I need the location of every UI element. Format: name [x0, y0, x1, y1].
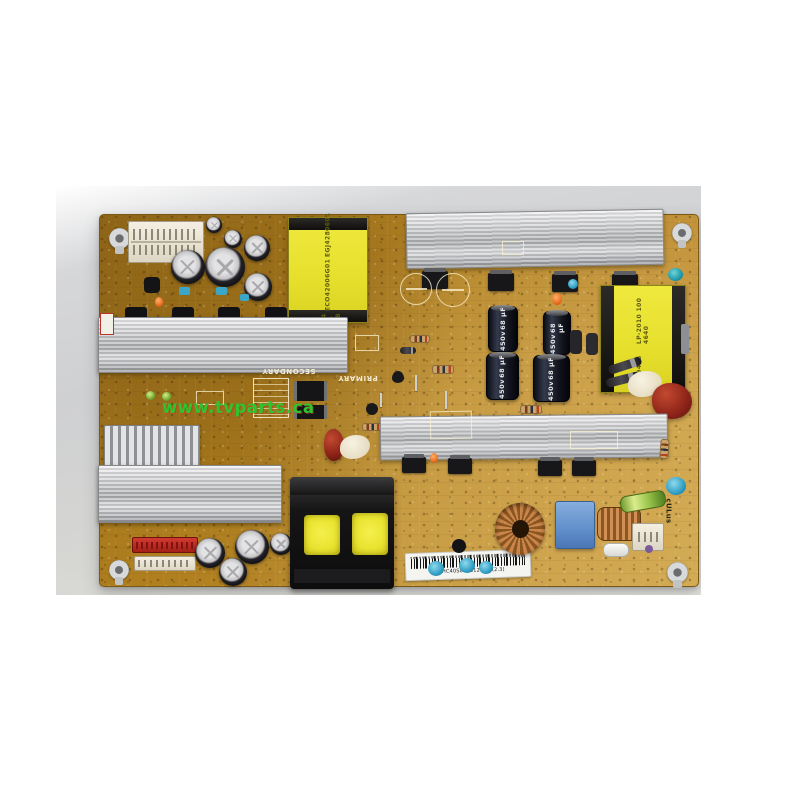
bulk-capacitor-450v: 450v68 µF: [486, 353, 519, 400]
electrolytic-capacitor: [205, 247, 245, 287]
mounting-eyelet: [109, 560, 129, 580]
disc-capacitor-blue: [568, 279, 578, 289]
silkscreen-primary-label: PRIMARY: [338, 374, 378, 382]
core-top-bar: [290, 477, 394, 495]
disc-capacitor-orange: [155, 297, 163, 307]
mounting-eyelet: [667, 562, 688, 583]
resistor-vertical: [586, 333, 598, 355]
fuse-cylinder: [603, 543, 629, 557]
core-bottom-bar: [294, 569, 390, 583]
electrolytic-capacitor: [244, 235, 270, 261]
resistor: [659, 439, 669, 460]
silkscreen-box: [430, 411, 472, 440]
power-transistor: [488, 273, 514, 291]
electrolytic-capacitor: [219, 558, 247, 586]
capacitor-label: 450v68 µF: [499, 307, 507, 351]
connector-pin-slots: [138, 560, 192, 567]
output-connector-red: [132, 537, 198, 553]
film-capacitor-blue: [179, 287, 190, 295]
disc-capacitor-orange: [552, 293, 562, 305]
power-transistor: [402, 457, 426, 473]
resistor-vertical: [570, 330, 582, 354]
to92-transistor: [452, 539, 466, 553]
film-capacitor-blue: [216, 287, 227, 295]
bulk-capacitor-450v: 450v68 µF: [533, 355, 570, 402]
connector-divider: [131, 241, 201, 243]
glass-diode-green: [619, 489, 667, 514]
bulk-capacitor-450v: 450v68 µF: [543, 311, 571, 355]
winding-window: [304, 515, 340, 555]
mounting-eyelet: [109, 228, 130, 249]
filter-capacitor-box: [555, 501, 595, 549]
resistor: [432, 365, 454, 374]
electrolytic-capacitor: [235, 530, 269, 564]
jumper-wire: [445, 391, 447, 409]
ul-safety-mark: cULus: [664, 499, 672, 524]
electrolytic-capacitor: [224, 230, 242, 248]
silkscreen-cap-footprint: [436, 273, 470, 307]
electrolytic-capacitor: [171, 250, 205, 284]
power-transistor: [572, 460, 596, 476]
to92-transistor: [392, 371, 404, 383]
axial-diode: [400, 347, 416, 354]
silkscreen-secondary-label: SECONDARY: [262, 367, 315, 375]
disc-capacitor-teal: [668, 268, 683, 281]
jumper-wire: [380, 393, 382, 407]
to92-transistor: [366, 403, 378, 415]
connector-pin-slots: [638, 532, 659, 542]
output-connector-white: [134, 556, 196, 571]
power-transistor: [448, 458, 472, 474]
jumper-wire: [415, 375, 417, 391]
capacitor-label: 450v68 µF: [547, 357, 555, 401]
electrolytic-capacitor: [270, 533, 292, 555]
mounting-eyelet: [672, 223, 692, 243]
product-photo: www.tvparts.ca LS-D04: [56, 186, 701, 595]
transformer-bottom: [290, 477, 394, 589]
disc-capacitor-blue: [459, 558, 475, 573]
disc-capacitor-orange: [430, 453, 438, 463]
film-capacitor-blue: [240, 294, 249, 301]
heatsink-top-right: [406, 209, 665, 269]
edge-label: [100, 313, 114, 335]
capacitor-label: 450v68 µF: [549, 312, 565, 354]
bead-purple: [645, 545, 653, 553]
electrolytic-capacitor: [206, 217, 222, 233]
inductor-small: [144, 277, 160, 293]
resistor: [520, 405, 542, 414]
resistor: [410, 335, 430, 343]
disc-capacitor-blue: [666, 477, 686, 495]
winding-window: [352, 513, 388, 555]
green-diode: [146, 391, 155, 400]
transformer-top: LS-D04 SC-D3B ECO42006G01 EGJ4280601: [288, 217, 368, 323]
watermark: www.tvparts.ca: [162, 398, 315, 417]
silkscreen-box: [570, 431, 618, 449]
heatsink-finned-left: [104, 425, 200, 469]
silkscreen-box: [502, 241, 524, 255]
wax-glue-blob: [340, 435, 370, 459]
toroid-inductor: [495, 503, 545, 555]
capacitor-label: 450v68 µF: [498, 355, 506, 399]
heatsink-bottom-left: [98, 465, 282, 523]
silkscreen-cap-footprint: [400, 273, 432, 305]
disc-capacitor-blue: [428, 561, 444, 576]
silkscreen-box: [355, 335, 379, 351]
power-transistor: [538, 460, 562, 476]
disc-capacitor-blue: [479, 561, 493, 574]
connector-pin-slots: [133, 229, 200, 240]
heatsink-mid-left: [98, 317, 348, 373]
transformer-label: LS-D04 SC-D3B ECO42006G01 EGJ4280601: [289, 218, 367, 322]
bulk-capacitor-450v: 450v68 µF: [488, 306, 518, 352]
